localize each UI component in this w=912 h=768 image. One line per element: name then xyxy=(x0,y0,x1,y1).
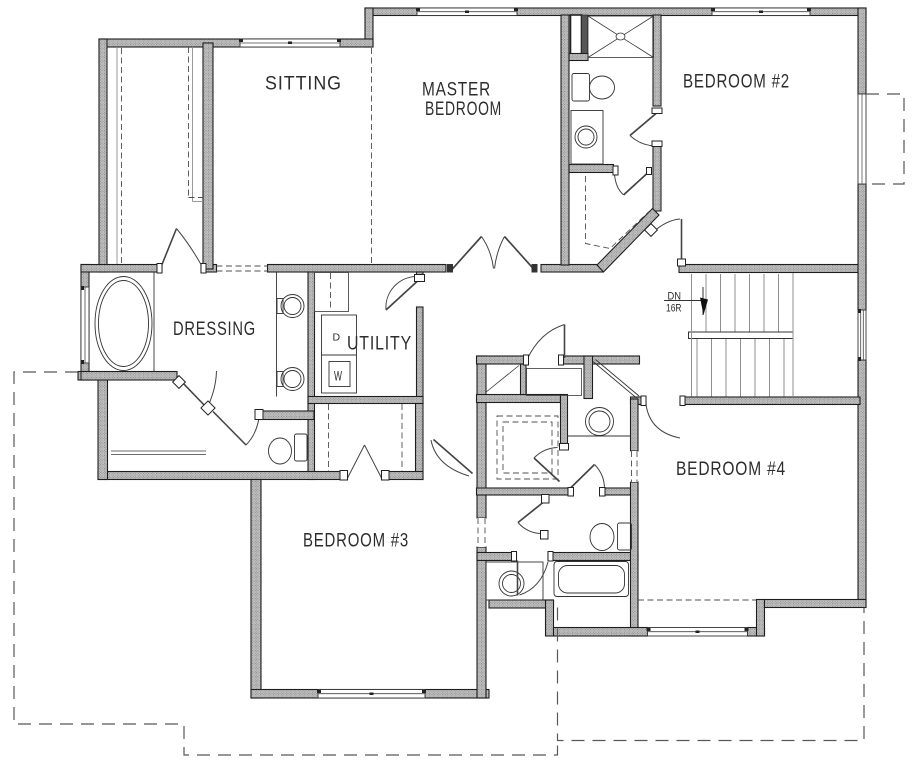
svg-text:BEDROOM: BEDROOM xyxy=(425,99,502,120)
svg-text:D: D xyxy=(333,332,341,344)
svg-text:DRESSING: DRESSING xyxy=(173,319,256,340)
svg-text:BEDROOM #3: BEDROOM #3 xyxy=(303,531,409,552)
svg-text:BEDROOM #4: BEDROOM #4 xyxy=(676,459,786,480)
svg-text:UTILITY: UTILITY xyxy=(347,334,412,355)
svg-text:SITTING: SITTING xyxy=(265,74,342,95)
svg-text:MASTER: MASTER xyxy=(422,80,491,101)
svg-text:16R: 16R xyxy=(666,302,682,314)
svg-text:W: W xyxy=(334,368,342,384)
svg-text:BEDROOM #2: BEDROOM #2 xyxy=(683,72,790,93)
